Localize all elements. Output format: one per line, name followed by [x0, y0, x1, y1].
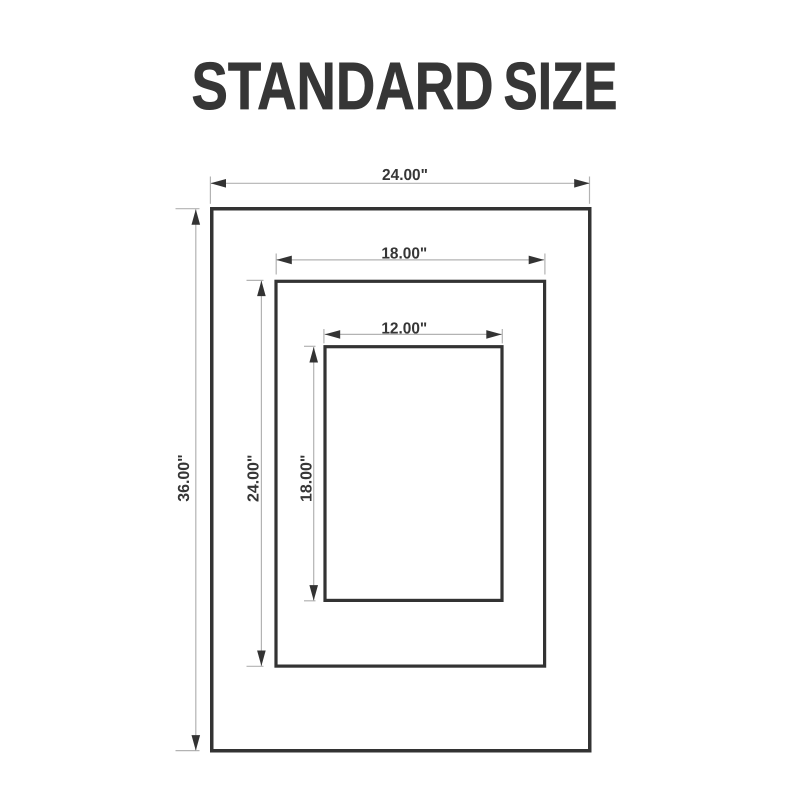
svg-text:24.00": 24.00"	[246, 455, 263, 503]
svg-text:18.00": 18.00"	[299, 455, 316, 503]
svg-text:36.00": 36.00"	[176, 454, 193, 502]
svg-text:12.00": 12.00"	[381, 321, 427, 338]
svg-text:STANDARD: STANDARD	[192, 49, 494, 124]
svg-text:18.00": 18.00"	[381, 245, 427, 262]
svg-text:24.00": 24.00"	[382, 167, 428, 184]
svg-text:SIZE: SIZE	[504, 49, 618, 124]
